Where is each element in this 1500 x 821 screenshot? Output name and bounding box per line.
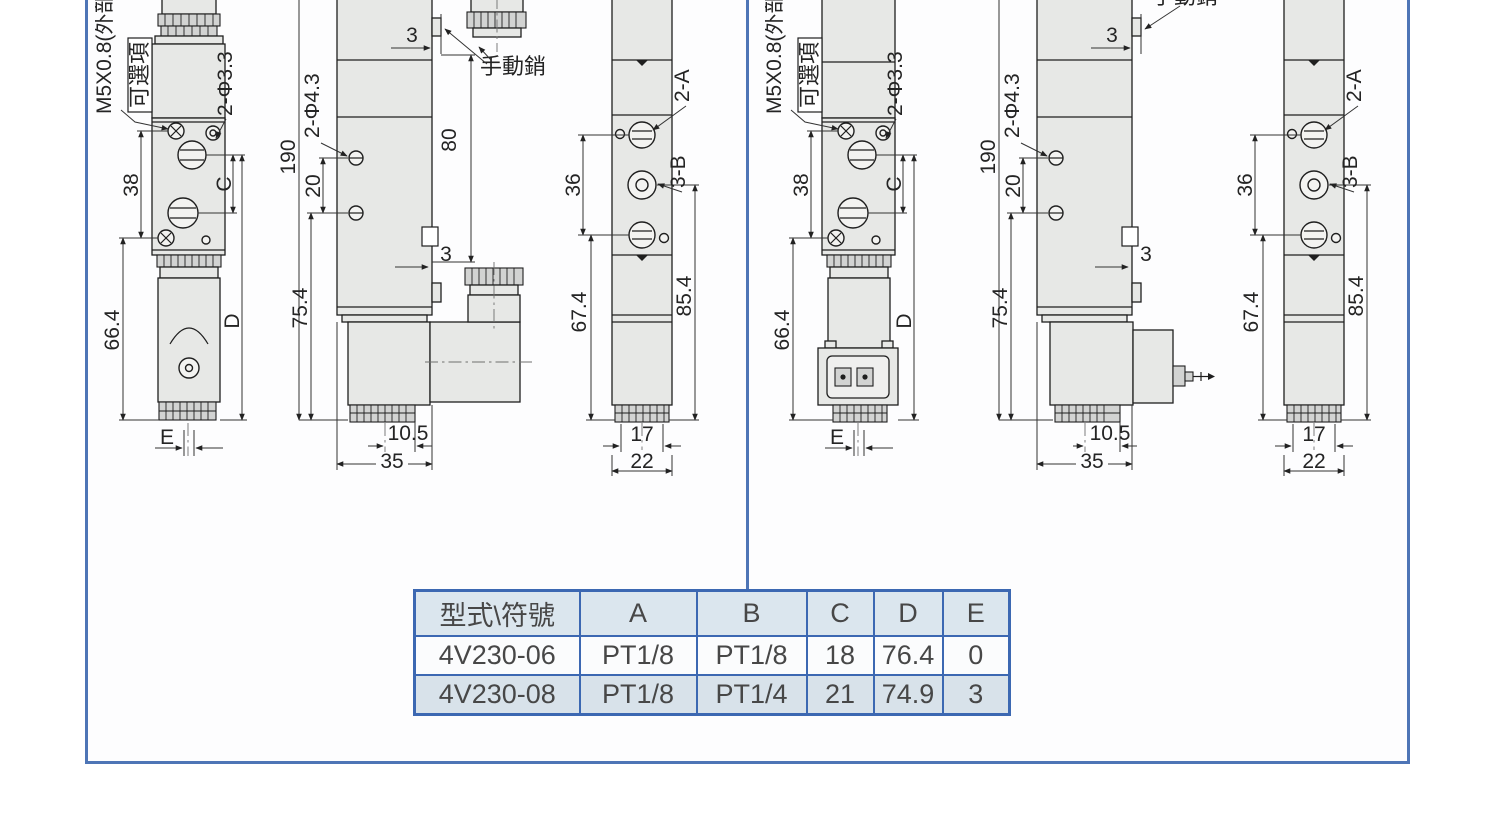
dim-label-3-low: 3 [1140, 243, 1152, 266]
dim-label-22: 22 [630, 450, 653, 473]
port-label-3b: 3-B [1339, 155, 1362, 188]
table-row: 4V230-08 PT1/8 PT1/4 21 74.9 3 [415, 675, 1010, 715]
dim-label-d: D [893, 313, 916, 328]
table-header-e: E [943, 591, 1010, 637]
dim-label-36: 36 [1237, 173, 1257, 196]
dim-label-20: 20 [302, 174, 325, 197]
dim-label-75-4: 75.4 [989, 287, 1012, 328]
right-side-view: 手動銷 3 3 2-Φ4.3 190 20 75.4 10.5 35 [975, 0, 1225, 478]
port-label-3b: 3-B [667, 155, 690, 188]
table-header-row: 型式\符號 A B C D E [415, 591, 1010, 637]
dim-label-20: 20 [1002, 174, 1025, 197]
dim-label-c: C [213, 176, 236, 191]
dim-label-80: 80 [438, 128, 461, 151]
left-front-view: 38 66.4 C D E M5X0.8(外部) 可選項 2-Φ3.3 [95, 0, 255, 478]
cell-c: 21 [807, 675, 874, 715]
manual-pin-label-cropped: 手動銷 [1152, 0, 1218, 9]
cell-d: 76.4 [874, 636, 943, 675]
table-header-b: B [697, 591, 807, 637]
cell-a: PT1/8 [580, 675, 697, 715]
table-header-c: C [807, 591, 874, 637]
cell-e: 3 [943, 675, 1010, 715]
table-header-a: A [580, 591, 697, 637]
optional-label: 可選項 [127, 42, 152, 108]
dim-label-66-4: 66.4 [101, 309, 124, 350]
holes-phi33-label: 2-Φ3.3 [884, 51, 907, 116]
right-port-view: 36 67.4 85.4 2-A 3-B 17 22 [1237, 0, 1389, 478]
cell-model: 4V230-08 [415, 675, 580, 715]
holes-phi43-label: 2-Φ4.3 [1001, 73, 1024, 138]
dim-label-3-top: 3 [406, 24, 418, 47]
table-header-model: 型式\符號 [415, 591, 580, 637]
dim-label-85-4: 85.4 [1345, 275, 1368, 316]
cell-b: PT1/8 [697, 636, 807, 675]
dim-label-c: C [883, 176, 906, 191]
model-dimension-table: 型式\符號 A B C D E 4V230-06 PT1/8 PT1/8 18 … [413, 589, 1011, 716]
dim-label-3-top: 3 [1106, 24, 1118, 47]
dim-label-3-low: 3 [440, 243, 452, 266]
dim-label-35: 35 [380, 450, 403, 473]
thread-spec-label: M5X0.8(外部) [765, 0, 786, 114]
cell-e: 0 [943, 636, 1010, 675]
valve-body-side [1037, 0, 1215, 455]
cell-a: PT1/8 [580, 636, 697, 675]
dim-label-36: 36 [565, 173, 585, 196]
left-port-view: 36 67.4 85.4 2-A 3-B 17 22 [565, 0, 717, 478]
dim-label-190: 190 [977, 139, 1000, 174]
cell-d: 74.9 [874, 675, 943, 715]
dim-label-35: 35 [1080, 450, 1103, 473]
spec-table-container: 型式\符號 A B C D E 4V230-06 PT1/8 PT1/8 18 … [413, 589, 1011, 716]
dim-label-75-4: 75.4 [289, 287, 312, 328]
dim-label-d: D [221, 313, 244, 328]
table-header-d: D [874, 591, 943, 637]
valve-body-ports [612, 0, 672, 450]
manual-pin-label: 手動銷 [480, 54, 546, 79]
holes-phi33-label: 2-Φ3.3 [214, 51, 237, 116]
dim-label-17: 17 [630, 423, 653, 446]
dim-label-e: E [830, 426, 844, 449]
holes-phi43-label: 2-Φ4.3 [301, 73, 324, 138]
optional-label: 可選項 [797, 42, 822, 108]
dim-label-17: 17 [1302, 423, 1325, 446]
dim-label-190: 190 [277, 139, 300, 174]
left-side-view: 3 手動銷 80 3 2-Φ4.3 190 20 75.4 10.5 [275, 0, 565, 478]
valve-dimension-drawing: 38 66.4 C D E M5X0.8(外部) 可選項 2-Φ3.3 [0, 0, 1500, 821]
port-label-2a: 2-A [671, 69, 694, 102]
dim-label-22: 22 [1302, 450, 1325, 473]
dim-label-38: 38 [790, 173, 813, 196]
dim-label-85-4: 85.4 [673, 275, 696, 316]
center-divider-line [746, 0, 749, 590]
dim-label-10-5: 10.5 [1090, 422, 1131, 445]
right-front-view: 38 66.4 C D E M5X0.8(外部) 可選項 2-Φ3.3 [765, 0, 940, 478]
table-row: 4V230-06 PT1/8 PT1/8 18 76.4 0 [415, 636, 1010, 675]
dim-label-e: E [160, 426, 174, 449]
port-label-2a: 2-A [1343, 69, 1366, 102]
dim-label-38: 38 [120, 173, 143, 196]
dim-label-66-4: 66.4 [771, 309, 794, 350]
cell-b: PT1/4 [697, 675, 807, 715]
cell-c: 18 [807, 636, 874, 675]
terminal-connector [818, 341, 898, 405]
dim-label-67-4: 67.4 [568, 291, 591, 332]
lead-wire-housing [1133, 330, 1215, 403]
thread-spec-label: M5X0.8(外部) [95, 0, 116, 114]
valve-body-ports [1284, 0, 1344, 450]
dim-label-67-4: 67.4 [1240, 291, 1263, 332]
dim-label-10-5: 10.5 [388, 422, 429, 445]
cell-model: 4V230-06 [415, 636, 580, 675]
